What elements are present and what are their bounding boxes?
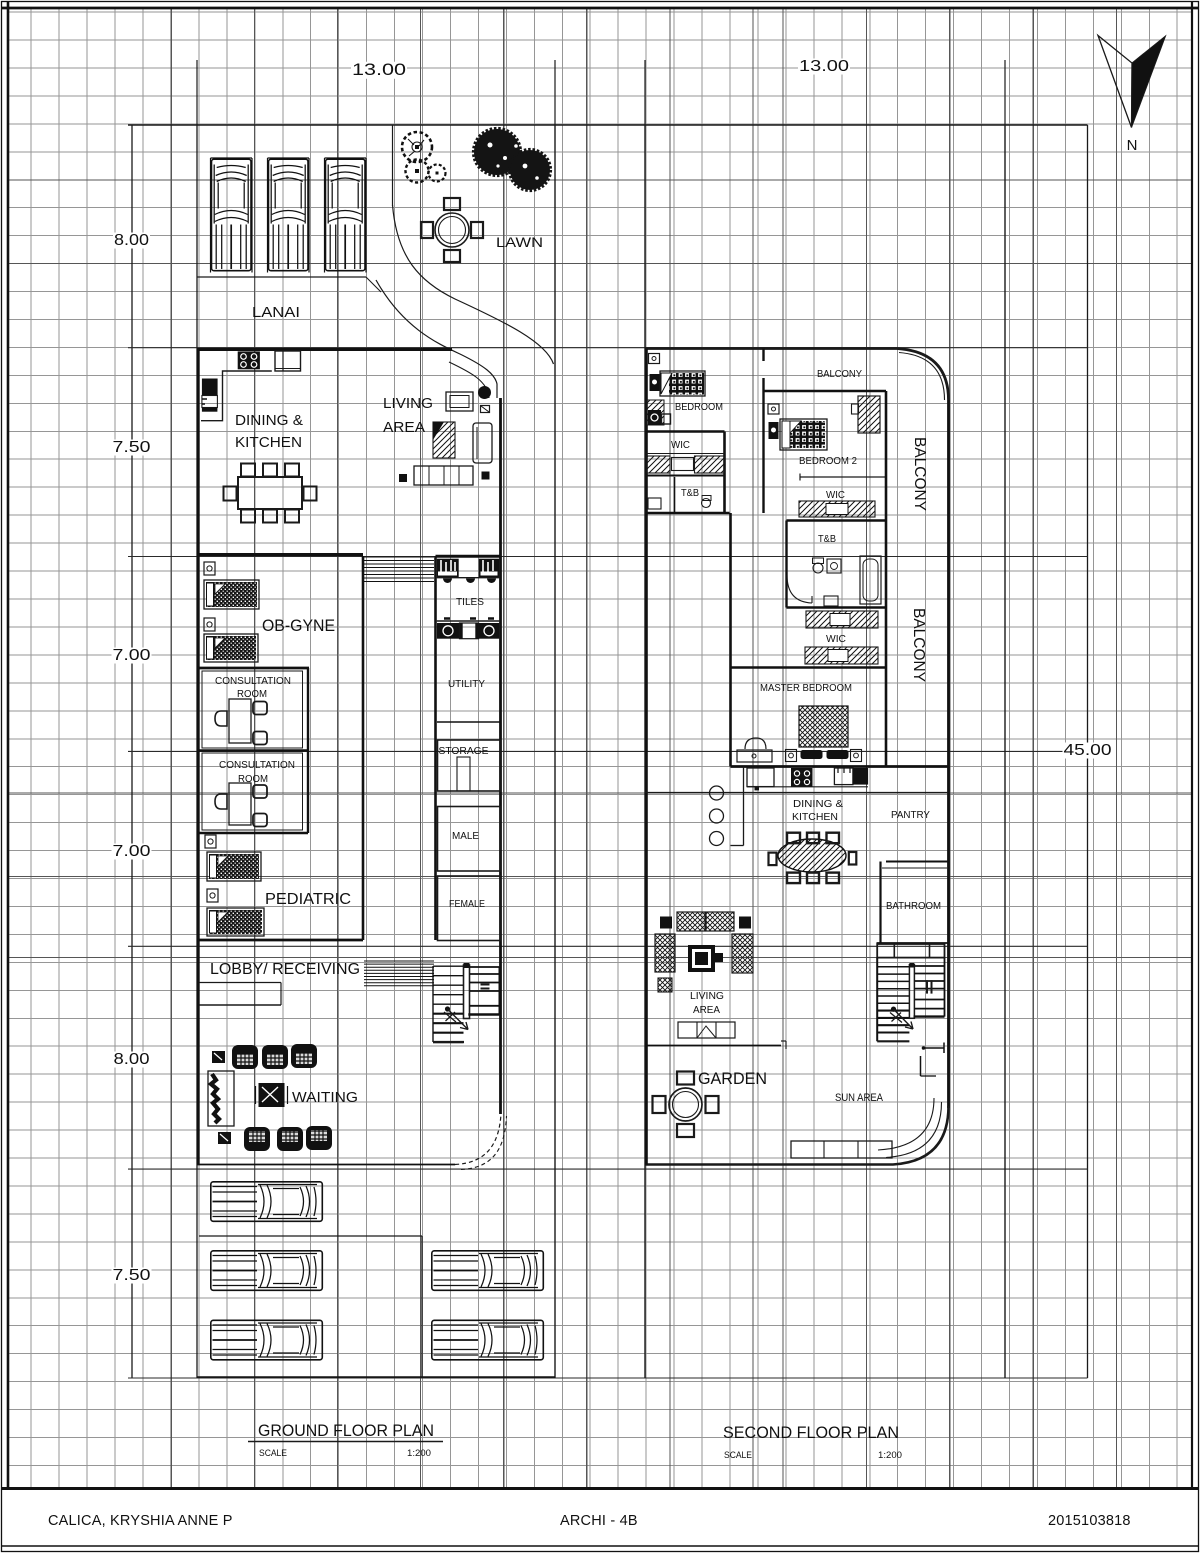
svg-text:7.50: 7.50: [113, 439, 151, 456]
svg-text:WIC: WIC: [671, 440, 690, 451]
svg-text:DINING &: DINING &: [793, 798, 843, 810]
svg-text:45.00: 45.00: [1064, 742, 1112, 759]
svg-text:SCALE: SCALE: [724, 1450, 752, 1461]
svg-text:BATHROOM: BATHROOM: [886, 900, 941, 912]
svg-text:FEMALE: FEMALE: [449, 898, 485, 910]
svg-text:AREA: AREA: [383, 419, 425, 436]
svg-text:WIC: WIC: [826, 490, 845, 501]
svg-text:LIVING: LIVING: [690, 990, 724, 1002]
svg-text:ROOM: ROOM: [237, 689, 267, 700]
svg-text:BEDROOM 2: BEDROOM 2: [799, 455, 857, 467]
svg-text:7.50: 7.50: [113, 1267, 151, 1284]
svg-text:AREA: AREA: [693, 1004, 720, 1016]
svg-text:TILES: TILES: [456, 596, 484, 608]
svg-text:T&B: T&B: [681, 488, 699, 499]
svg-text:8.00: 8.00: [114, 1051, 150, 1068]
svg-text:GARDEN: GARDEN: [698, 1069, 767, 1088]
svg-text:LANAI: LANAI: [252, 305, 300, 321]
svg-text:WIC: WIC: [826, 634, 846, 645]
svg-text:BALCONY: BALCONY: [817, 368, 862, 380]
svg-text:BALCONY: BALCONY: [911, 437, 928, 511]
svg-text:KITCHEN: KITCHEN: [792, 811, 838, 823]
svg-text:MASTER BEDROOM: MASTER BEDROOM: [760, 682, 852, 694]
svg-text:CALICA, KRYSHIA ANNE P: CALICA, KRYSHIA ANNE P: [48, 1513, 233, 1529]
svg-text:MALE: MALE: [452, 830, 479, 842]
svg-text:SECOND FLOOR PLAN: SECOND FLOOR PLAN: [723, 1423, 899, 1442]
svg-text:BALCONY: BALCONY: [910, 608, 927, 682]
svg-text:WAITING: WAITING: [292, 1089, 358, 1106]
svg-text:1:200: 1:200: [407, 1448, 431, 1459]
svg-text:BEDROOM: BEDROOM: [675, 401, 723, 413]
svg-text:UTILITY: UTILITY: [448, 678, 485, 690]
svg-text:LIVING: LIVING: [383, 395, 433, 412]
svg-text:SCALE: SCALE: [259, 1448, 287, 1459]
svg-text:2015103818: 2015103818: [1048, 1513, 1131, 1529]
svg-text:7.00: 7.00: [113, 843, 151, 860]
svg-text:N: N: [1127, 137, 1138, 154]
svg-text:T&B: T&B: [818, 534, 836, 545]
svg-text:PANTRY: PANTRY: [891, 809, 930, 821]
svg-text:7.00: 7.00: [113, 647, 151, 664]
svg-text:13.00: 13.00: [799, 58, 849, 75]
svg-text:DINING &: DINING &: [235, 412, 303, 429]
svg-text:1:200: 1:200: [878, 1450, 902, 1461]
svg-text:OB-GYNE: OB-GYNE: [262, 616, 335, 635]
svg-text:KITCHEN: KITCHEN: [235, 434, 302, 451]
svg-text:SUN AREA: SUN AREA: [835, 1092, 884, 1104]
svg-text:8.00: 8.00: [114, 232, 149, 249]
svg-text:STORAGE: STORAGE: [439, 745, 489, 757]
svg-text:GROUND FLOOR PLAN: GROUND FLOOR PLAN: [258, 1421, 434, 1440]
svg-text:LOBBY/ RECEIVING: LOBBY/ RECEIVING: [210, 961, 360, 978]
svg-text:CONSULTATION: CONSULTATION: [219, 760, 295, 771]
svg-text:PEDIATRIC: PEDIATRIC: [265, 891, 351, 908]
svg-text:13.00: 13.00: [352, 60, 406, 79]
svg-text:ARCHI - 4B: ARCHI - 4B: [560, 1513, 638, 1529]
svg-text:LAWN: LAWN: [496, 234, 543, 250]
svg-text:CONSULTATION: CONSULTATION: [215, 676, 291, 687]
